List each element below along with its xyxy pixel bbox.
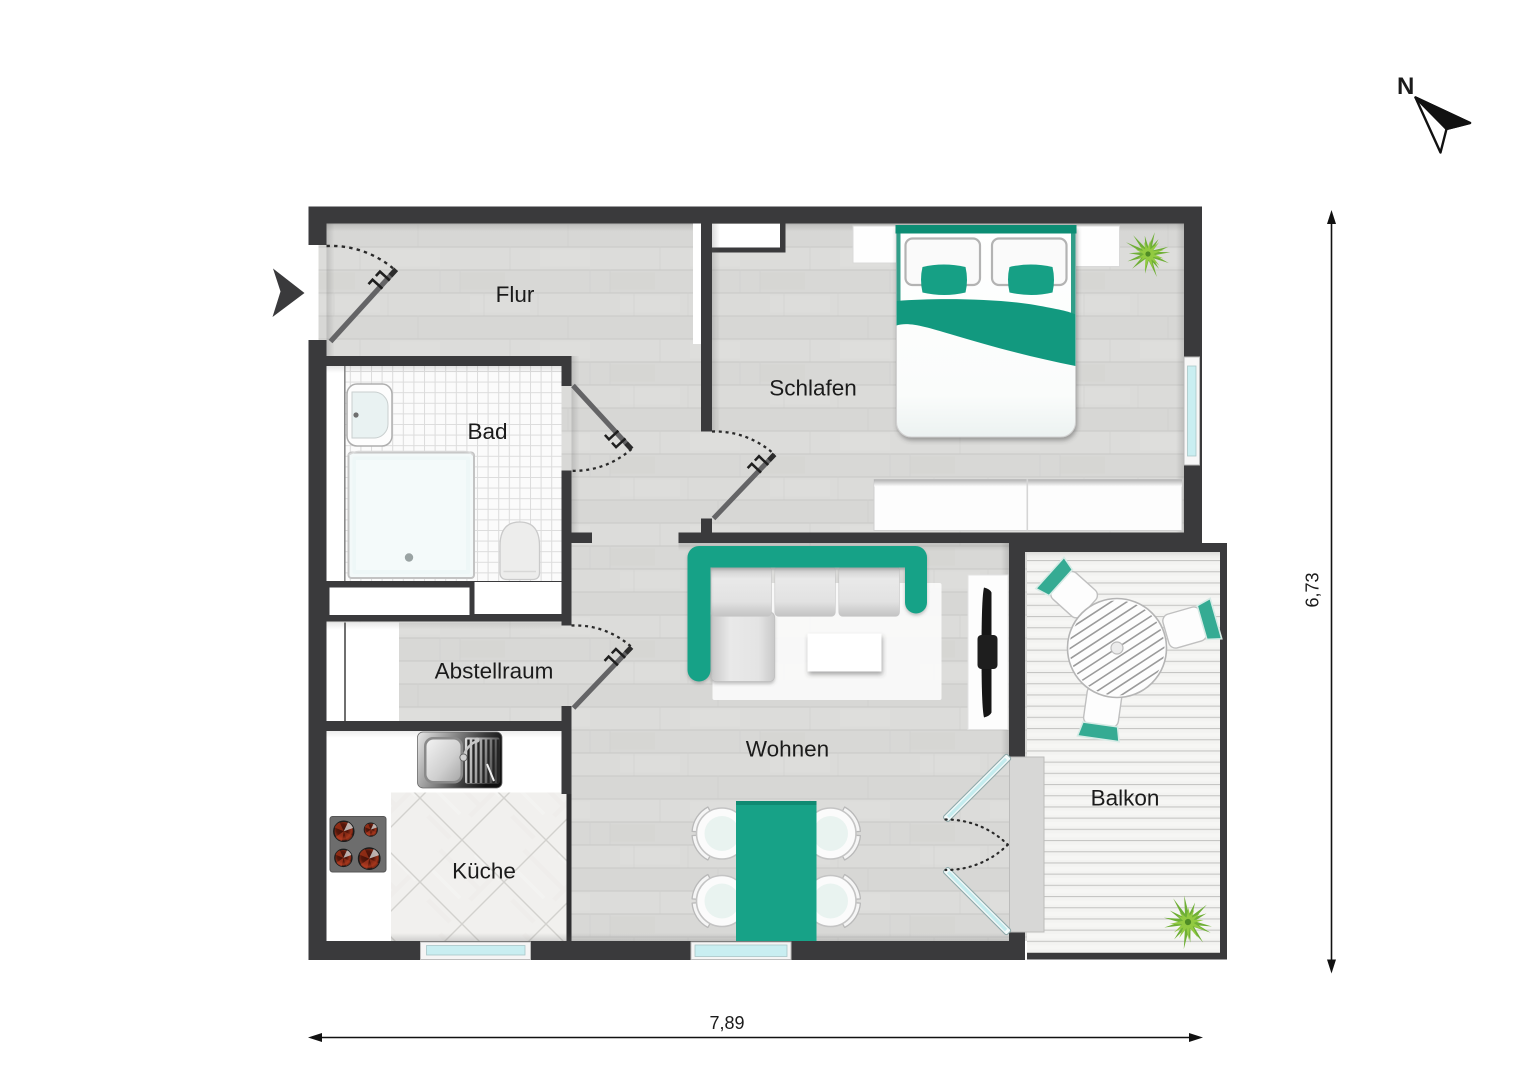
svg-text:Küche: Küche <box>452 859 516 884</box>
svg-text:6,73: 6,73 <box>1303 572 1323 607</box>
svg-text:Balkon: Balkon <box>1091 786 1160 811</box>
svg-text:Bad: Bad <box>467 419 507 444</box>
svg-text:Abstellraum: Abstellraum <box>435 659 554 684</box>
svg-text:Flur: Flur <box>496 282 535 307</box>
svg-text:N: N <box>1397 73 1414 100</box>
svg-text:Wohnen: Wohnen <box>746 737 829 762</box>
svg-text:7,89: 7,89 <box>709 1013 744 1033</box>
svg-text:Schlafen: Schlafen <box>769 376 857 401</box>
